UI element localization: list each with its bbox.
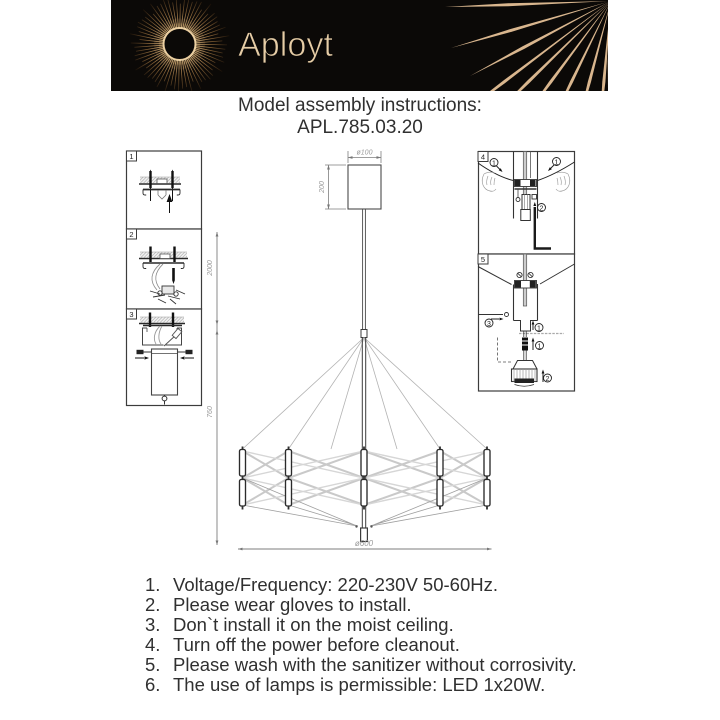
svg-text:ø600: ø600 <box>355 539 374 548</box>
svg-text:1: 1 <box>555 159 559 166</box>
svg-text:2000: 2000 <box>207 260 214 277</box>
svg-text:2: 2 <box>540 205 544 212</box>
svg-text:1: 1 <box>492 160 496 167</box>
svg-text:4: 4 <box>481 153 485 162</box>
svg-text:1: 1 <box>537 325 541 332</box>
svg-text:3: 3 <box>129 310 133 319</box>
svg-text:5: 5 <box>481 255 485 264</box>
svg-text:3: 3 <box>487 321 491 328</box>
svg-text:1: 1 <box>129 152 133 161</box>
svg-text:2: 2 <box>129 230 133 239</box>
svg-text:200: 200 <box>319 181 326 194</box>
svg-text:ø100: ø100 <box>357 150 373 157</box>
svg-text:2: 2 <box>546 376 550 383</box>
svg-text:760: 760 <box>207 406 214 418</box>
svg-text:1: 1 <box>538 343 542 350</box>
